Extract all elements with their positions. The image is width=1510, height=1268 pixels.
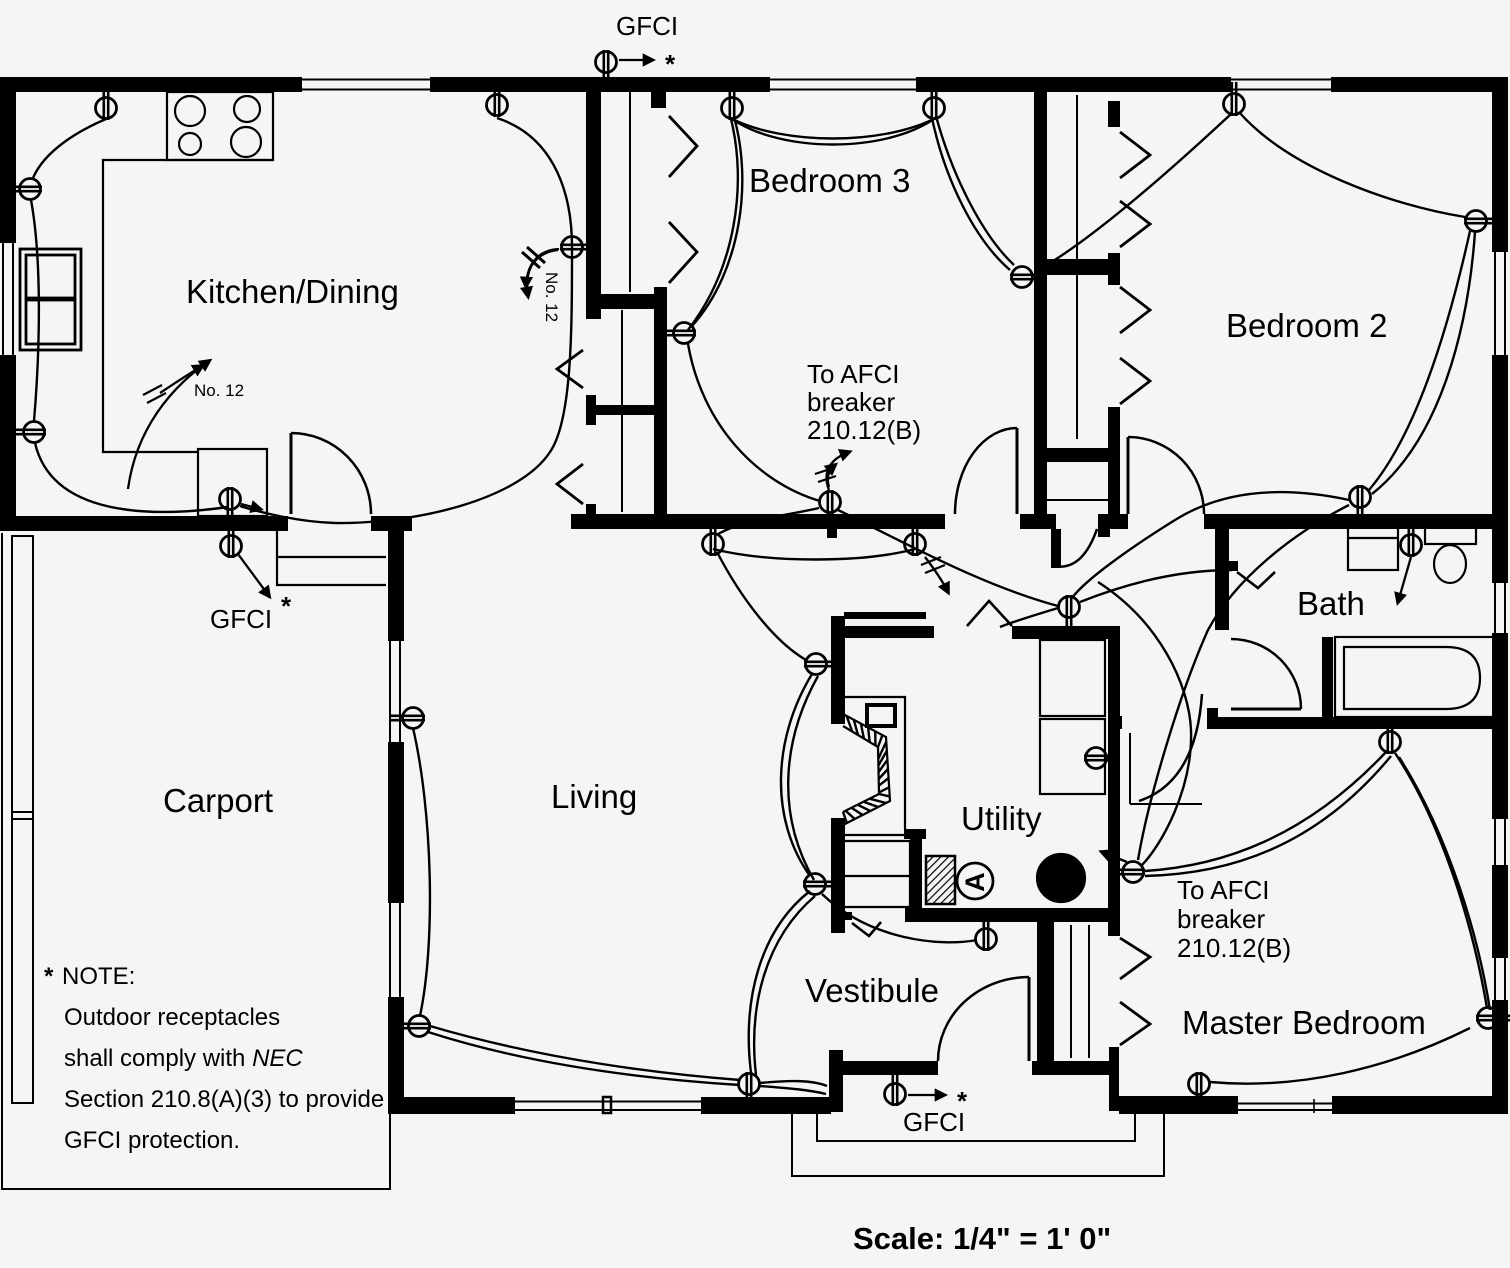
svg-text:shall comply with NEC: shall comply with NEC	[64, 1045, 303, 1072]
svg-text:Vestibule: Vestibule	[805, 972, 939, 1009]
svg-text:Utility: Utility	[961, 800, 1042, 837]
svg-text:To AFCI: To AFCI	[1177, 875, 1269, 905]
svg-text:Section 210.8(A)(3) to provide: Section 210.8(A)(3) to provide	[64, 1086, 384, 1113]
svg-text:GFCI protection.: GFCI protection.	[64, 1127, 240, 1154]
svg-text:Bath: Bath	[1297, 585, 1365, 622]
svg-text:Outdoor receptacles: Outdoor receptacles	[64, 1004, 280, 1031]
svg-text:210.12(B): 210.12(B)	[807, 415, 921, 445]
svg-text:*: *	[281, 591, 292, 621]
svg-text:A: A	[960, 872, 990, 892]
svg-text:GFCI: GFCI	[616, 11, 678, 41]
svg-text:GFCI: GFCI	[903, 1107, 965, 1137]
svg-text:Bedroom 3: Bedroom 3	[749, 162, 910, 199]
svg-text:Bedroom 2: Bedroom 2	[1226, 307, 1387, 344]
svg-text:Living: Living	[551, 778, 637, 815]
svg-text:NOTE:: NOTE:	[62, 963, 135, 990]
svg-text:To AFCI: To AFCI	[807, 359, 899, 389]
svg-text:breaker: breaker	[807, 387, 895, 417]
svg-text:No. 12: No. 12	[194, 381, 244, 400]
svg-text:No. 12: No. 12	[542, 272, 561, 322]
svg-text:Carport: Carport	[163, 782, 273, 819]
svg-text:*: *	[957, 1086, 968, 1116]
svg-text:Scale: 1/4" = 1' 0": Scale: 1/4" = 1' 0"	[853, 1221, 1111, 1256]
svg-text:*: *	[665, 49, 676, 79]
svg-text:210.12(B): 210.12(B)	[1177, 933, 1291, 963]
svg-text:Kitchen/Dining: Kitchen/Dining	[186, 273, 399, 310]
svg-text:*: *	[44, 963, 54, 990]
svg-text:breaker: breaker	[1177, 904, 1265, 934]
svg-text:GFCI: GFCI	[210, 604, 272, 634]
svg-text:Master Bedroom: Master Bedroom	[1182, 1004, 1426, 1041]
